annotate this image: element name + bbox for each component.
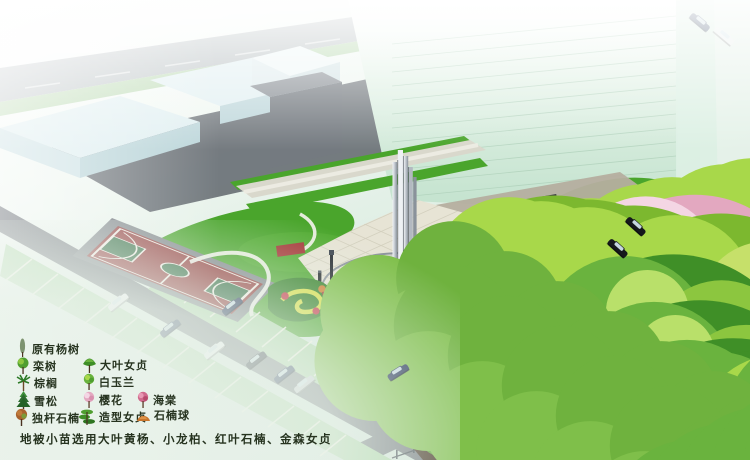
landscape-rendering: 原有杨树 栾树 大叶女贞 棕榈 白玉兰 雪松 樱花 海棠 独杆石楠 造型女贞 石… <box>0 0 750 460</box>
single-stem-photinia-icon <box>14 408 29 426</box>
existing-poplar-icon <box>16 338 29 357</box>
legend-label: 独杆石楠 <box>32 413 80 426</box>
ground-cover-note: 地被小苗选用大叶黄杨、小龙柏、红叶石楠、金森女贞 <box>20 431 332 447</box>
legend-label: 石楠球 <box>154 410 190 423</box>
legend-label: 海棠 <box>153 395 177 408</box>
legend-item: 白玉兰 <box>82 373 135 390</box>
legend-item: 栾树 <box>16 357 57 374</box>
legend-item: 独杆石楠 <box>14 408 80 426</box>
white-magnolia-tree-icon <box>82 373 96 390</box>
palm-tree-icon <box>16 374 31 391</box>
crabapple-tree-icon <box>136 391 150 408</box>
legend-item: 大叶女贞 <box>82 356 148 373</box>
cherry-blossom-tree-icon <box>82 391 96 408</box>
legend-label: 大叶女贞 <box>100 360 148 373</box>
legend-item: 石楠球 <box>136 410 190 423</box>
legend-item: 雪松 <box>16 391 58 409</box>
cedar-tree-icon <box>16 391 31 409</box>
legend-label: 栾树 <box>33 361 57 374</box>
legend-label: 原有杨树 <box>32 344 80 357</box>
legend-item: 樱花 <box>82 391 123 408</box>
legend-label: 白玉兰 <box>99 377 135 390</box>
legend-item: 原有杨树 <box>16 338 80 357</box>
broadleaf-privet-tree-icon <box>82 356 97 373</box>
legend-label: 棕榈 <box>34 378 58 391</box>
legend-label: 樱花 <box>99 395 123 408</box>
photinia-ball-icon <box>136 410 151 423</box>
koelreuteria-tree-icon <box>16 357 30 374</box>
plant-legend: 原有杨树 栾树 大叶女贞 棕榈 白玉兰 雪松 樱花 海棠 独杆石楠 造型女贞 石… <box>10 336 370 460</box>
legend-item: 海棠 <box>136 391 177 408</box>
legend-item: 棕榈 <box>16 374 58 391</box>
shaped-privet-icon <box>78 409 96 425</box>
